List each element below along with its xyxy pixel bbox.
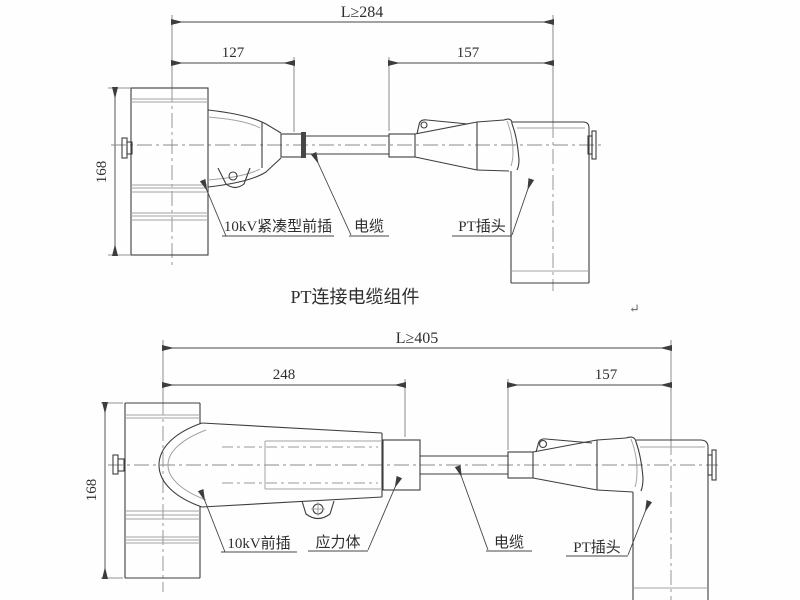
label-stress-cone: 应力体 bbox=[315, 533, 360, 551]
label-cable-top: 电缆 bbox=[354, 218, 384, 235]
label-pt-plug-top: PT插头 bbox=[458, 218, 506, 235]
label-front-plug-top: 10kV紧凑型前插 bbox=[224, 218, 332, 235]
top-pt-plug-body bbox=[389, 119, 596, 283]
bottom-labels: 10kV前插 应力体 电缆 PT插头 bbox=[201, 467, 649, 556]
dim-overall-top: L≥284 bbox=[341, 4, 384, 21]
label-pt-plug-bottom: PT插头 bbox=[573, 539, 621, 556]
dim-height-top: 168 bbox=[94, 161, 110, 184]
dim-left-bottom: 248 bbox=[273, 367, 296, 383]
label-cable-bottom: 电缆 bbox=[494, 534, 524, 551]
dim-right-bottom: 157 bbox=[595, 367, 618, 383]
technical-drawing-page: L≥284 127 157 168 bbox=[0, 0, 800, 600]
pt-cable-assembly-drawing: L≥284 127 157 168 bbox=[0, 0, 800, 600]
test-point-nub-bottom bbox=[113, 455, 124, 474]
label-front-plug-bottom: 10kV前插 bbox=[227, 535, 290, 552]
bottom-pt-plug-body bbox=[508, 437, 716, 600]
dim-right-top: 157 bbox=[457, 45, 480, 61]
dim-height-bottom: 168 bbox=[84, 479, 100, 502]
grounding-tab-bottom-left bbox=[302, 501, 334, 519]
top-diagram: L≥284 127 157 168 bbox=[94, 4, 640, 316]
dim-overall-bottom: L≥405 bbox=[396, 330, 439, 347]
paragraph-return-mark: ↵ bbox=[629, 301, 640, 316]
bottom-diagram: L≥405 248 157 168 bbox=[84, 330, 718, 600]
top-dimensions: L≥284 127 157 168 bbox=[94, 4, 553, 255]
top-labels: 10kV紧凑型前插 电缆 PT插头 PT连接电缆组件 ↵ bbox=[203, 154, 640, 316]
top-diagram-title: PT连接电缆组件 bbox=[290, 287, 419, 307]
dim-left-top: 127 bbox=[222, 45, 245, 61]
